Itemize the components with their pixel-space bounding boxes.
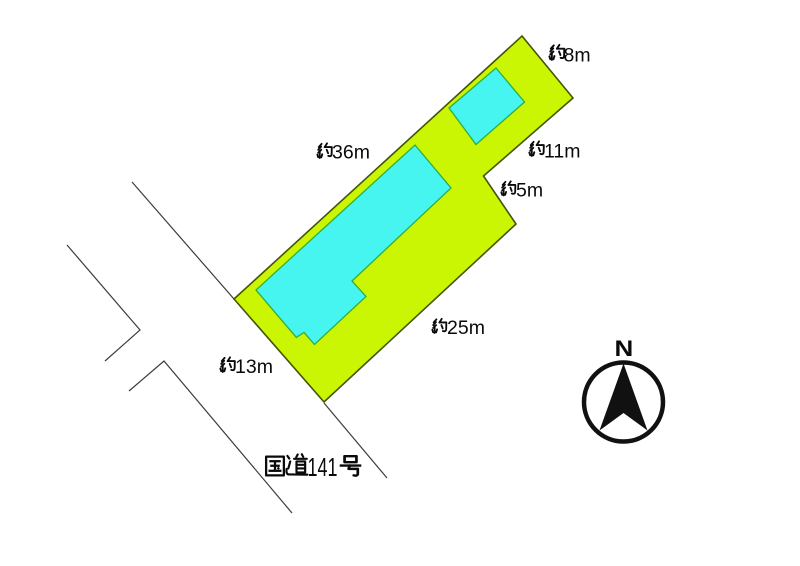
- svg-text:11m: 11m: [544, 141, 581, 163]
- svg-text:5m: 5m: [516, 180, 543, 202]
- svg-text:N: N: [615, 337, 634, 362]
- svg-text:36m: 36m: [332, 142, 370, 164]
- svg-text:13m: 13m: [235, 356, 273, 378]
- svg-text:141: 141: [308, 452, 338, 482]
- svg-text:8m: 8m: [564, 45, 591, 67]
- svg-text:25m: 25m: [447, 317, 485, 339]
